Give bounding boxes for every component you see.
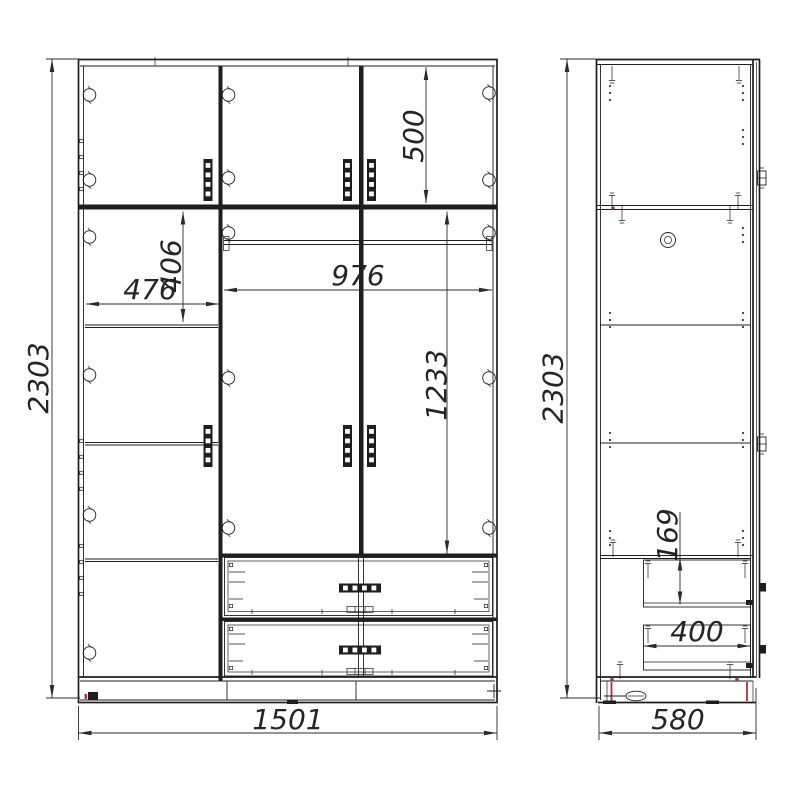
side-drawer-box-1 [644, 560, 754, 607]
rod-cross-section-icon [661, 233, 676, 248]
hinge-icon [83, 228, 96, 246]
hinge-icon [222, 224, 235, 242]
screw-icon [727, 206, 733, 223]
door-height-label: 1233 [420, 349, 453, 420]
wardrobe-technical-drawing: 2303 500 406 476 976 [0, 0, 800, 800]
screwdriver-icon [604, 691, 646, 701]
hinge-icon [83, 86, 96, 104]
dim-upper-door-height: 500 [397, 67, 430, 203]
hinge-icon [222, 169, 235, 187]
drawer-depth-label: 400 [670, 615, 723, 648]
front-left-shelves [85, 325, 218, 562]
handle-icon [343, 425, 352, 467]
hinge-icon [83, 506, 96, 524]
left-section-width-label: 476 [123, 273, 176, 306]
drawer-handle-icon [339, 584, 381, 593]
knob-icon [760, 645, 767, 654]
upper-door-height-label: 500 [397, 109, 430, 162]
screw-icon [645, 561, 651, 578]
hinge-icon [83, 171, 96, 189]
screw-icon [736, 66, 742, 83]
dim-center-section-width: 976 [224, 259, 492, 292]
dim-front-overall-width: 1501 [79, 703, 498, 740]
dim-left-section-width: 476 [86, 273, 219, 306]
screw-icon [619, 206, 625, 223]
handle-icon [367, 159, 376, 201]
foot [88, 692, 98, 700]
hanging-rod [224, 237, 493, 251]
front-width-label: 1501 [252, 703, 323, 736]
side-carcass [596, 60, 760, 704]
screw-icon [609, 66, 615, 83]
front-height-label: 2303 [22, 342, 55, 413]
dim-front-overall-height: 2303 [22, 59, 80, 698]
rod-cross-section-inner [665, 237, 672, 244]
foot [603, 701, 616, 705]
drawer-knobs-side [760, 583, 767, 654]
screw-icon [735, 540, 741, 557]
handle-icon [367, 425, 376, 467]
hinge-icon [222, 369, 235, 387]
dim-door-height: 1233 [420, 212, 453, 554]
front-plinth-details [85, 684, 502, 704]
dim-drawer-depth: 400 [644, 615, 751, 648]
knob-icon [760, 583, 767, 592]
screw-icon [735, 193, 741, 210]
hinge-icon [83, 366, 96, 384]
handle-icon [204, 425, 213, 467]
screw-icon [645, 626, 651, 643]
dim-side-overall-height: 2303 [537, 59, 601, 698]
side-depth-label: 580 [651, 703, 704, 736]
screw-icon [742, 626, 748, 643]
hinge-icon [83, 644, 96, 662]
handle-icon [204, 159, 213, 201]
drawer-front-height-label: 169 [651, 508, 684, 561]
drawing-canvas: 2303 500 406 476 976 [0, 0, 800, 800]
side-screws [609, 66, 742, 681]
side-view: 2303 169 400 580 [537, 59, 767, 740]
side-height-label: 2303 [537, 352, 570, 423]
side-hole-rows [609, 85, 744, 546]
foot [706, 701, 719, 705]
drawer-handle-icon [339, 646, 381, 655]
handle-icon [343, 159, 352, 201]
front-view: 2303 500 406 476 976 [22, 57, 501, 740]
screw-icon [610, 540, 616, 557]
hinge-icon [222, 86, 235, 104]
dim-drawer-front-height: 169 [651, 508, 684, 604]
hinge-icon [222, 519, 235, 537]
center-section-width-label: 976 [331, 259, 384, 292]
screw-icon [742, 561, 748, 578]
